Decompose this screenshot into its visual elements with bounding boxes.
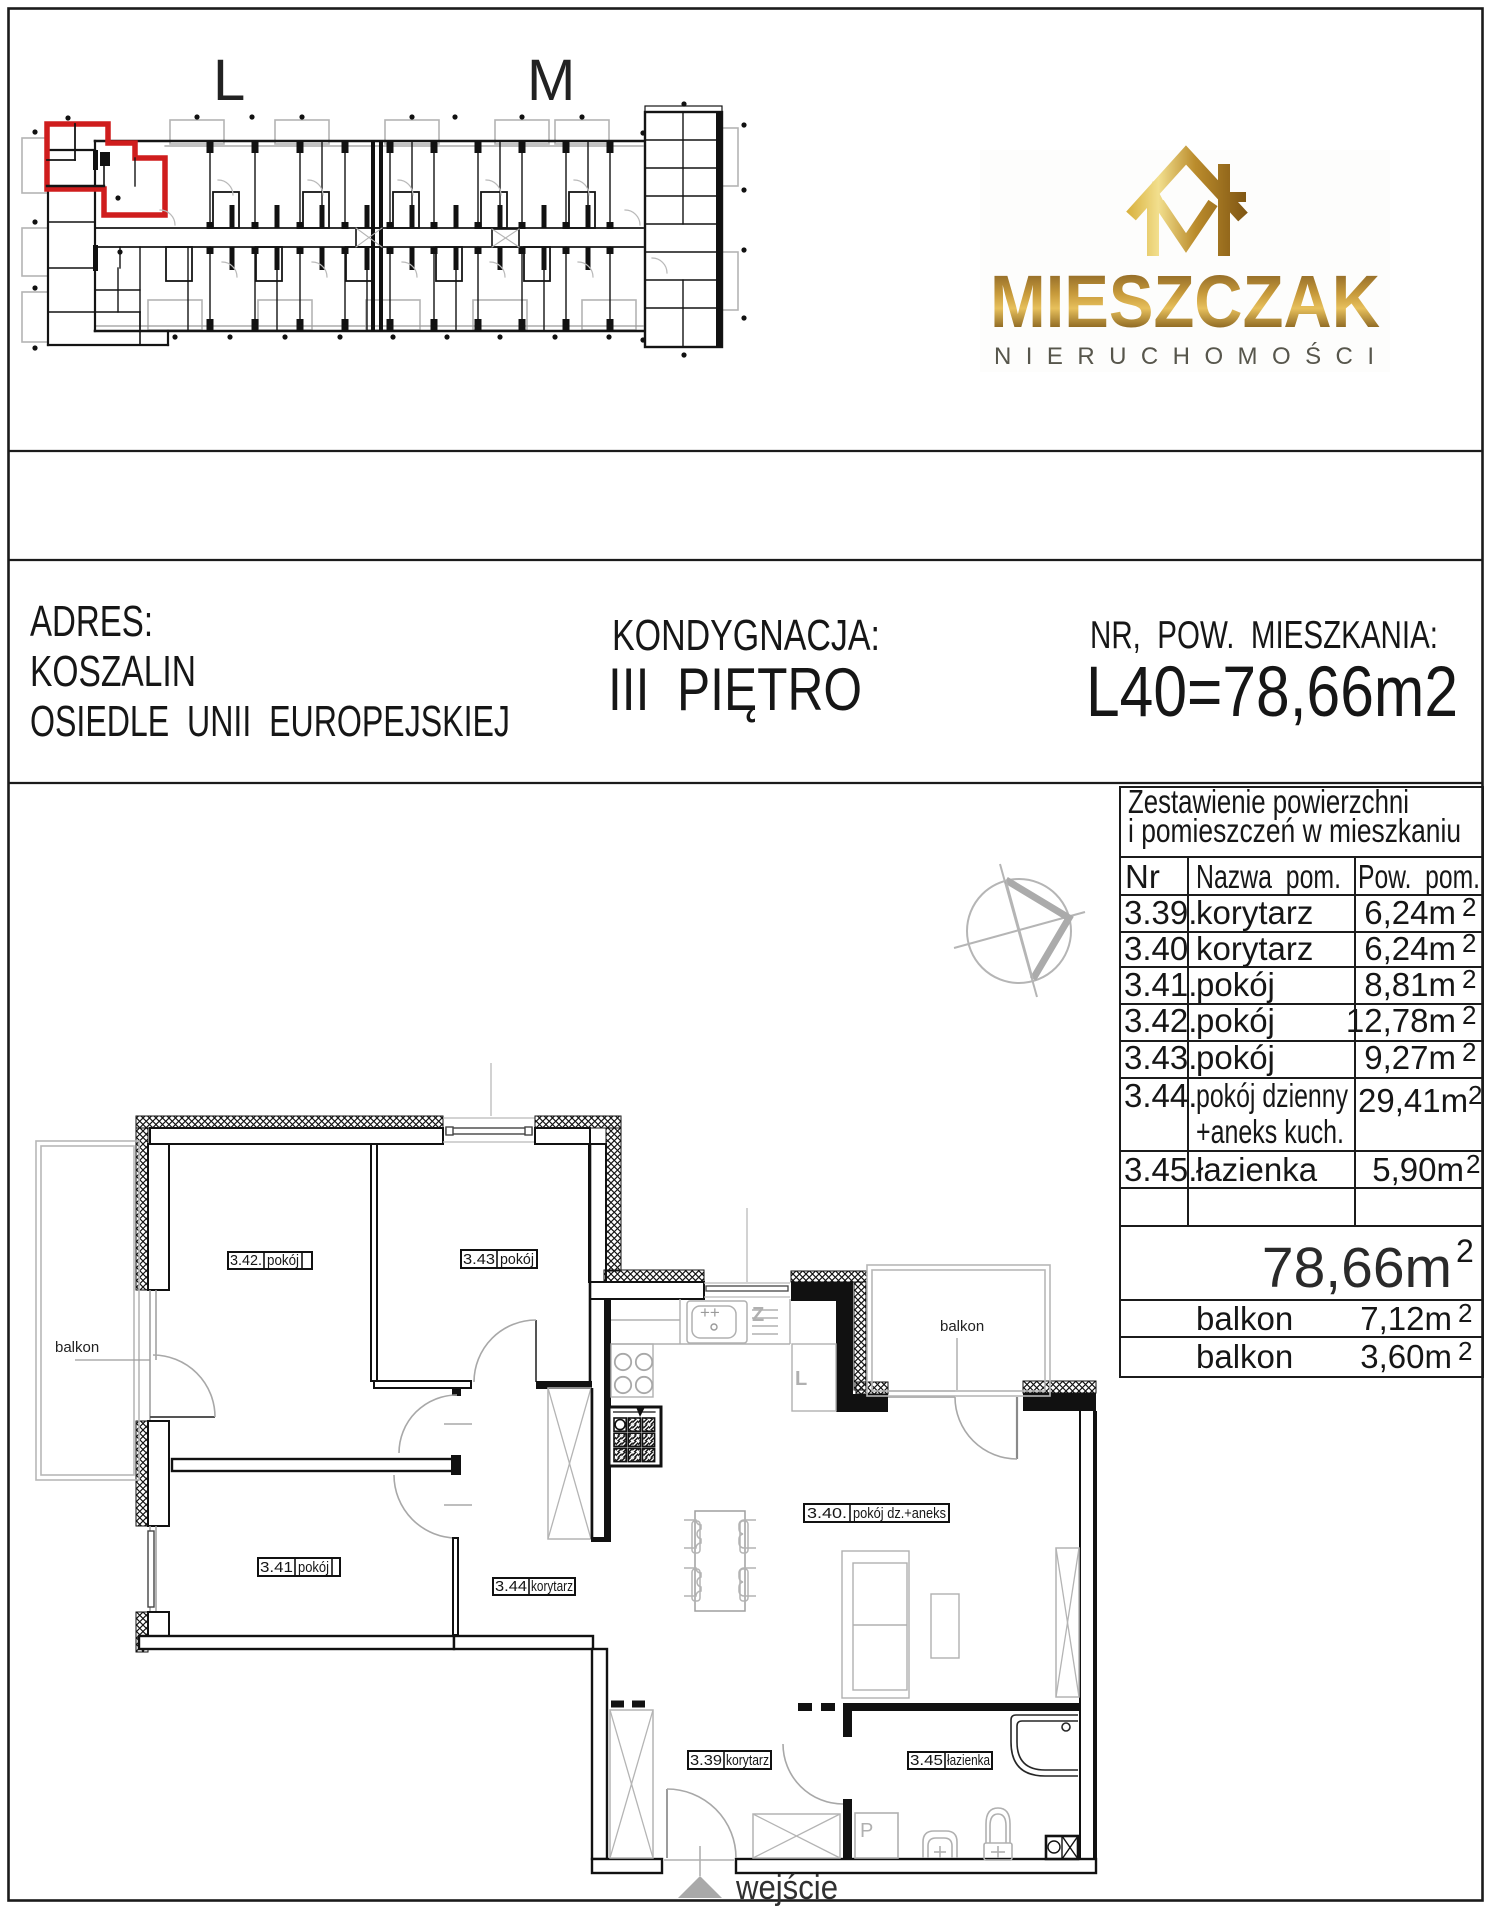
svg-text:3.44: 3.44 [495,1579,527,1595]
svg-text:3.40: 3.40 [1124,930,1188,967]
svg-text:3,60m: 3,60m [1360,1338,1452,1375]
svg-text:5,90m: 5,90m [1372,1151,1464,1188]
svg-text:ADRES:: ADRES: [30,597,153,646]
svg-text:NR, POW. MIESZKANIA:: NR, POW. MIESZKANIA: [1090,614,1438,657]
svg-text:III PIĘTRO: III PIĘTRO [608,656,862,723]
svg-text:3.43: 3.43 [463,1252,495,1268]
svg-text:OSIEDLE UNII EUROPEJSKIEJ: OSIEDLE UNII EUROPEJSKIEJ [30,697,510,746]
svg-text:3.44.: 3.44. [1124,1077,1197,1114]
svg-text:Nr: Nr [1125,858,1160,895]
svg-text:łazienka: łazienka [1196,1151,1318,1188]
svg-text:wejście: wejście [735,1869,838,1907]
svg-text:P: P [860,1820,873,1842]
svg-text:++: ++ [700,1303,720,1322]
svg-text:L40=78,66m2: L40=78,66m2 [1086,653,1458,732]
svg-text:3.45: 3.45 [910,1753,943,1769]
svg-text:2: 2 [1462,892,1476,922]
svg-text:3.42.: 3.42. [1124,1002,1197,1039]
svg-text:L: L [795,1368,807,1390]
svg-text:łazienka: łazienka [947,1753,991,1769]
svg-text:balkon: balkon [940,1318,984,1335]
svg-text:2: 2 [1456,1233,1474,1269]
svg-text:KONDYGNACJA:: KONDYGNACJA: [612,611,880,660]
svg-text:2: 2 [1468,1080,1482,1110]
svg-text:L: L [213,48,245,113]
svg-text:6,24m: 6,24m [1364,894,1456,931]
svg-text:pokój dz.+aneks: pokój dz.+aneks [853,1506,946,1522]
svg-text:pokój: pokój [1196,1002,1275,1039]
svg-text:2: 2 [1466,1149,1480,1179]
svg-text:3.41.: 3.41. [1124,966,1197,1003]
svg-text:KOSZALIN: KOSZALIN [30,647,196,696]
svg-text:8,81m: 8,81m [1364,966,1456,1003]
svg-text:korytarz: korytarz [726,1753,769,1769]
svg-text:6,24m: 6,24m [1364,930,1456,967]
svg-text:2: 2 [1462,964,1476,994]
svg-text:pokój: pokój [267,1253,299,1269]
svg-text:pokój dzienny: pokój dzienny [1196,1077,1348,1114]
svg-text:korytarz: korytarz [1196,930,1313,967]
svg-text:3.42.: 3.42. [230,1253,262,1269]
svg-text:pokój: pokój [1196,1039,1275,1076]
svg-text:korytarz: korytarz [531,1579,573,1595]
svg-text:Nazwa pom.: Nazwa pom. [1196,858,1341,895]
svg-text:NIERUCHOMOŚCI: NIERUCHOMOŚCI [994,342,1374,370]
svg-text:MIESZCZAK: MIESZCZAK [990,260,1380,343]
svg-text:Pow. pom.: Pow. pom. [1358,858,1480,895]
svg-text:2: 2 [1458,1336,1472,1366]
svg-text:78,66m: 78,66m [1262,1236,1452,1300]
svg-text:3.39: 3.39 [690,1753,722,1769]
svg-text:2: 2 [1462,928,1476,958]
svg-text:balkon: balkon [1196,1338,1293,1375]
svg-text:2: 2 [1462,1000,1476,1030]
svg-text:3.45.: 3.45. [1124,1151,1197,1188]
svg-text:9,27m: 9,27m [1364,1039,1456,1076]
svg-text:Z: Z [752,1304,764,1326]
svg-text:M: M [527,48,575,113]
svg-text:pokój: pokój [298,1560,329,1576]
svg-text:korytarz: korytarz [1196,894,1313,931]
svg-text:3.40.: 3.40. [807,1506,847,1522]
svg-text:3.39.: 3.39. [1124,894,1197,931]
svg-text:29,41m: 29,41m [1358,1082,1468,1119]
svg-text:7,12m: 7,12m [1360,1300,1452,1337]
svg-text:balkon: balkon [1196,1300,1293,1337]
svg-text:i pomieszczeń w mieszkaniu: i pomieszczeń w mieszkaniu [1128,812,1461,849]
svg-text:pokój: pokój [1196,966,1275,1003]
svg-text:2: 2 [1458,1298,1472,1328]
svg-text:+aneks kuch.: +aneks kuch. [1196,1113,1344,1150]
svg-text:3.43.: 3.43. [1124,1039,1197,1076]
svg-text:balkon: balkon [55,1339,99,1356]
svg-text:2: 2 [1462,1037,1476,1067]
svg-text:12,78m: 12,78m [1346,1002,1456,1039]
svg-text:pokój: pokój [500,1252,534,1268]
svg-text:3.41: 3.41 [260,1560,293,1576]
